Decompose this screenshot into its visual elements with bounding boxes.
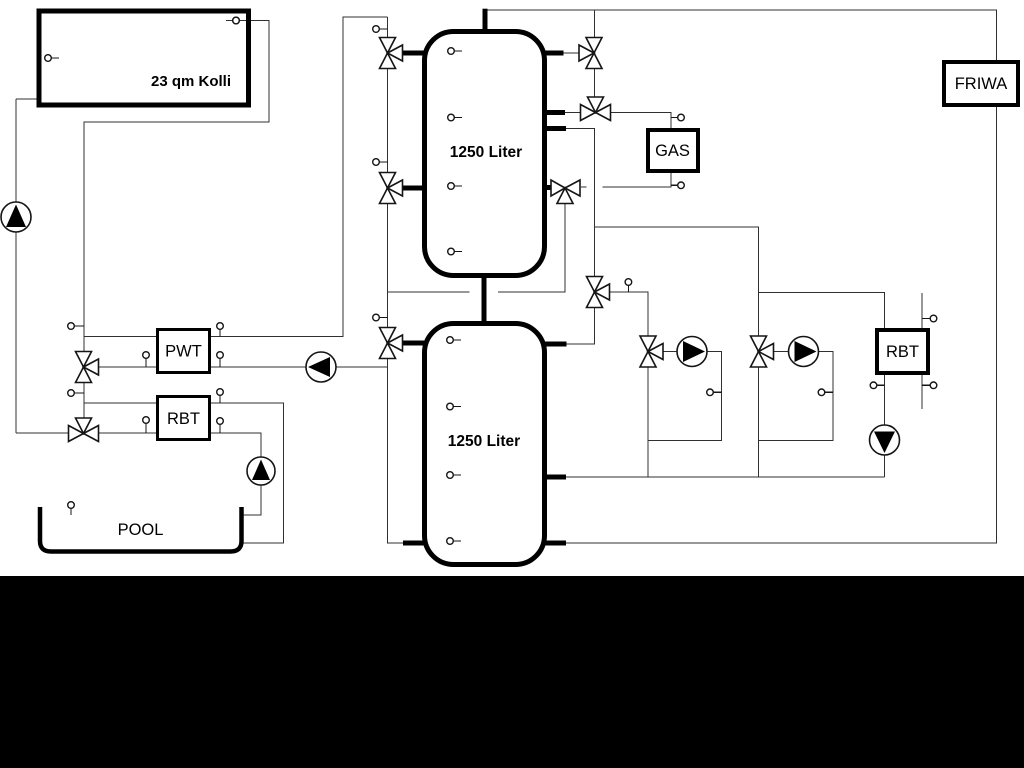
svg-text:FRIWA: FRIWA	[955, 75, 1008, 93]
svg-text:PWT: PWT	[165, 343, 202, 361]
svg-text:1250 Liter: 1250 Liter	[450, 144, 522, 161]
svg-text:RBT: RBT	[167, 410, 200, 428]
svg-text:RBT: RBT	[886, 343, 919, 361]
svg-text:POOL: POOL	[118, 521, 164, 539]
svg-text:1250 Liter: 1250 Liter	[448, 433, 520, 450]
svg-text:23 qm Kolli: 23 qm Kolli	[151, 73, 231, 90]
svg-text:GAS: GAS	[655, 142, 690, 160]
